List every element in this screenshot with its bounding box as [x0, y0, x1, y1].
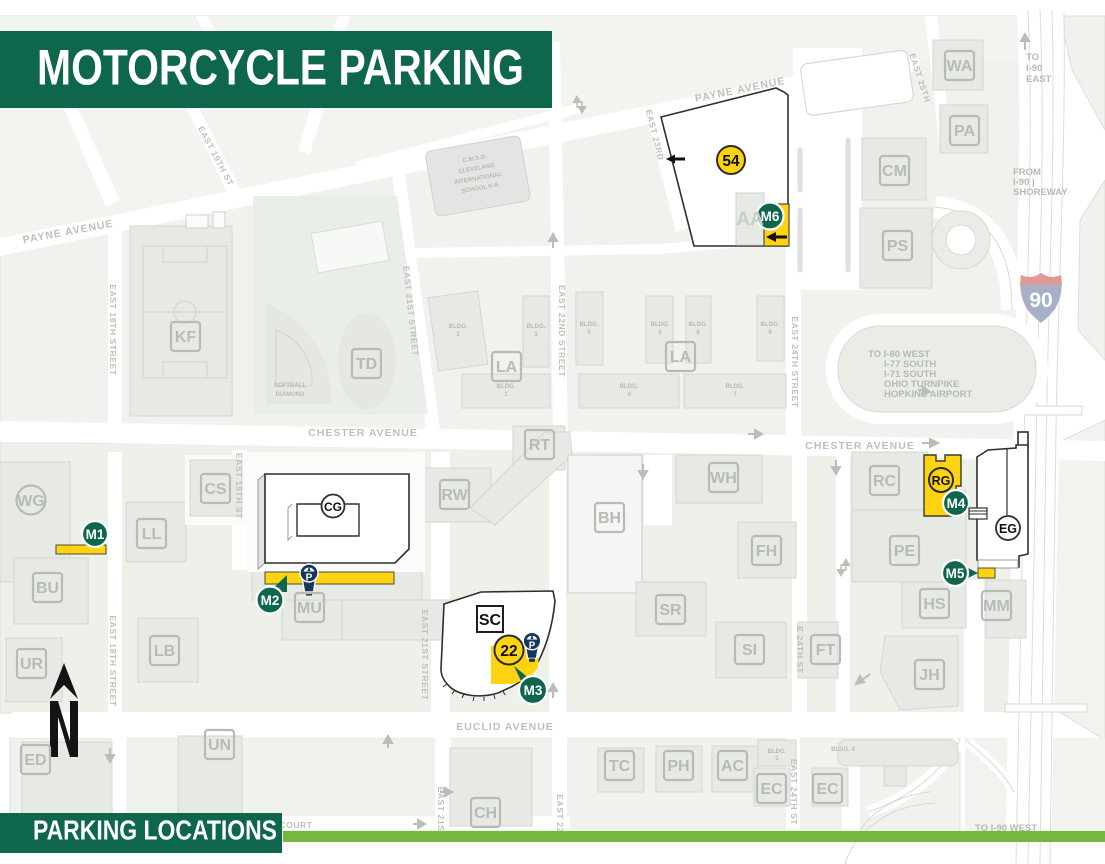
svg-text:EAST 24TH STREET: EAST 24TH STREET — [790, 316, 800, 408]
svg-text:54: 54 — [722, 153, 740, 170]
svg-text:MU: MU — [297, 600, 322, 617]
svg-text:RG: RG — [932, 474, 951, 488]
svg-text:CM: CM — [882, 163, 907, 180]
svg-text:TO: TO — [1026, 52, 1039, 63]
svg-text:P: P — [529, 640, 536, 651]
svg-text:EAST 22ND STREET: EAST 22ND STREET — [557, 285, 567, 377]
svg-text:PE: PE — [894, 543, 916, 560]
svg-text:BLDG.: BLDG. — [527, 324, 546, 330]
svg-text:MM: MM — [983, 598, 1010, 615]
svg-text:EC: EC — [760, 781, 783, 798]
svg-text:BLDG.: BLDG. — [689, 322, 708, 328]
svg-text:FT: FT — [816, 642, 836, 659]
svg-text:M1: M1 — [86, 527, 105, 542]
svg-text:RC: RC — [873, 473, 897, 490]
svg-text:M5: M5 — [946, 566, 965, 581]
svg-text:M3: M3 — [524, 683, 543, 698]
svg-text:EAST 18TH STREET: EAST 18TH STREET — [108, 615, 118, 707]
svg-text:EAST 21ST STREET: EAST 21ST STREET — [420, 610, 430, 701]
svg-text:ED: ED — [24, 752, 46, 769]
svg-text:BLDG. 4: BLDG. 4 — [831, 747, 855, 753]
svg-text:PARKING LOCATIONS: PARKING LOCATIONS — [33, 815, 277, 846]
svg-text:BLDG.: BLDG. — [726, 384, 745, 390]
svg-text:BLDG.: BLDG. — [761, 322, 780, 328]
svg-text:KF: KF — [175, 329, 197, 346]
svg-text:LA: LA — [670, 349, 692, 366]
svg-text:EAST 19TH ST: EAST 19TH ST — [234, 453, 244, 519]
svg-text:BU: BU — [36, 580, 59, 597]
svg-text:M2: M2 — [261, 593, 280, 608]
svg-text:CG: CG — [324, 500, 342, 514]
svg-text:TD: TD — [356, 356, 377, 373]
svg-text:EAST: EAST — [1026, 74, 1052, 85]
svg-text:RT: RT — [529, 437, 551, 454]
svg-text:UR: UR — [20, 656, 44, 673]
svg-text:DIAMOND: DIAMOND — [276, 392, 305, 398]
svg-text:PS: PS — [887, 238, 909, 255]
svg-text:EUCLID AVENUE: EUCLID AVENUE — [456, 721, 554, 733]
svg-text:TC: TC — [609, 758, 631, 775]
svg-text:LL: LL — [142, 526, 162, 543]
svg-text:AC: AC — [721, 758, 745, 775]
svg-text:PH: PH — [667, 758, 689, 775]
svg-text:EAST 18TH STREET: EAST 18TH STREET — [108, 284, 118, 376]
svg-text:SR: SR — [659, 602, 682, 619]
svg-text:MOTORCYCLE PARKING: MOTORCYCLE PARKING — [37, 40, 524, 96]
svg-text:I-90: I-90 — [1026, 63, 1042, 74]
svg-text:RW: RW — [441, 487, 468, 504]
svg-text:LA: LA — [496, 359, 518, 376]
svg-text:EAST 24TH ST: EAST 24TH ST — [789, 759, 799, 825]
svg-text:CS: CS — [204, 481, 227, 498]
svg-text:BLDG.: BLDG. — [768, 749, 787, 755]
svg-text:SC: SC — [479, 612, 502, 629]
svg-text:P: P — [306, 573, 313, 584]
svg-text:AA: AA — [736, 209, 764, 230]
svg-text:SOFTBALL: SOFTBALL — [274, 383, 306, 389]
svg-text:JH: JH — [919, 667, 939, 684]
svg-text:BLDG.: BLDG. — [497, 384, 516, 390]
svg-text:SHOREWAY: SHOREWAY — [1013, 187, 1068, 198]
svg-text:FH: FH — [756, 543, 777, 560]
svg-text:WG: WG — [17, 493, 45, 510]
svg-text:CHESTER AVENUE: CHESTER AVENUE — [805, 440, 915, 452]
svg-text:22: 22 — [500, 643, 517, 660]
svg-text:UN: UN — [208, 737, 231, 754]
svg-text:E 24TH ST: E 24TH ST — [795, 626, 805, 674]
svg-text:EG: EG — [999, 522, 1017, 536]
svg-text:EC: EC — [816, 781, 839, 798]
svg-text:COURT: COURT — [279, 820, 312, 830]
svg-text:WH: WH — [710, 470, 737, 487]
svg-text:BLDG.: BLDG. — [620, 384, 639, 390]
svg-text:BLDG.: BLDG. — [651, 322, 670, 328]
svg-text:WA: WA — [947, 58, 973, 75]
svg-text:BLDG.: BLDG. — [449, 324, 468, 330]
svg-text:BH: BH — [598, 510, 621, 527]
svg-text:CHESTER AVENUE: CHESTER AVENUE — [308, 427, 418, 439]
svg-text:M4: M4 — [947, 496, 966, 511]
svg-text:PA: PA — [954, 123, 975, 140]
svg-text:HS: HS — [923, 596, 946, 613]
svg-text:90: 90 — [1029, 289, 1052, 312]
svg-text:SI: SI — [742, 642, 757, 659]
svg-text:LB: LB — [154, 643, 175, 660]
svg-text:CH: CH — [474, 805, 497, 822]
svg-text:BLDG.: BLDG. — [580, 322, 599, 328]
